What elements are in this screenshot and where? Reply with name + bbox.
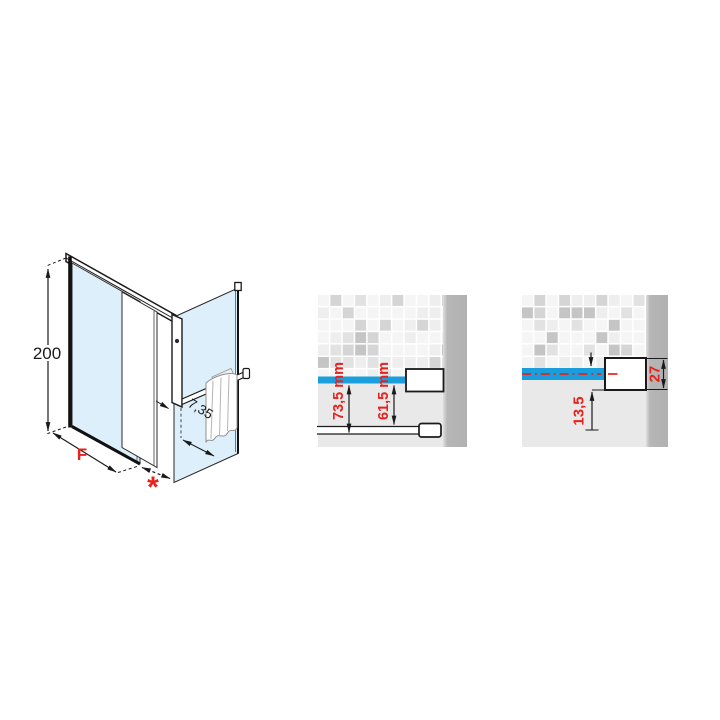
- outer-dim-label: 73,5 mm: [331, 362, 347, 420]
- mosaic-tile: [621, 345, 632, 356]
- mosaic-tile: [380, 320, 391, 331]
- mosaic-tile: [330, 332, 341, 343]
- mosaic-tile: [584, 320, 595, 331]
- mosaic-tile: [596, 307, 607, 318]
- mosaic-tile: [368, 307, 379, 318]
- mosaic-tile: [355, 320, 366, 331]
- mosaic-tile: [330, 307, 341, 318]
- mosaic-tile: [405, 320, 416, 331]
- mosaic-tile: [609, 345, 620, 356]
- profile-dim-label: 27: [647, 366, 664, 383]
- mosaic-tile: [609, 320, 620, 331]
- mosaic-tile: [559, 332, 570, 343]
- mosaic-tile: [534, 357, 545, 368]
- mosaic-tile: [430, 357, 441, 368]
- mosaic-tile: [318, 369, 329, 377]
- mosaic-tile: [596, 345, 607, 356]
- mosaic-tile: [584, 332, 595, 343]
- mosaic-tile: [380, 332, 391, 343]
- mosaic-tile: [318, 357, 329, 368]
- mosaic-tile: [405, 357, 416, 368]
- mosaic-tile: [355, 295, 366, 306]
- technical-drawing: 200: [0, 0, 720, 720]
- mosaic-tile: [442, 295, 443, 306]
- mosaic-tile: [343, 332, 354, 343]
- mosaic-tile: [559, 307, 570, 318]
- mosaic-tile: [596, 332, 607, 343]
- mosaic-tile: [559, 345, 570, 356]
- mosaic-tile: [621, 320, 632, 331]
- mosaic-tile: [368, 332, 379, 343]
- wall-edge-band: [443, 295, 467, 447]
- offset-pointer-arrow: [156, 401, 169, 409]
- mosaic-tile: [368, 295, 379, 306]
- mosaic-tile: [343, 320, 354, 331]
- mosaic-tile: [405, 295, 416, 306]
- mosaic-tile: [430, 320, 441, 331]
- mosaic-tile: [534, 307, 545, 318]
- height-dimension: 200: [31, 258, 66, 435]
- mosaic-tile: [547, 320, 558, 331]
- wall-detail-right: 27 13,5: [522, 295, 668, 447]
- mosaic-tile: [343, 295, 354, 306]
- mosaic-tile: [547, 345, 558, 356]
- mosaic-tile: [572, 320, 583, 331]
- height-label: 200: [33, 344, 61, 363]
- mosaic-tile: [634, 345, 645, 356]
- floor-bar-end-cap: [419, 424, 441, 438]
- mosaic-tile: [318, 320, 329, 331]
- door-glass: [122, 292, 157, 468]
- mosaic-tile: [330, 345, 341, 356]
- mosaic-tile: [442, 307, 443, 318]
- mosaic-tile: [343, 345, 354, 356]
- width-extension-dash: [118, 467, 137, 473]
- mosaic-tile: [572, 307, 583, 318]
- profile-section: [406, 369, 444, 392]
- mosaic-tile: [318, 295, 329, 306]
- gap-label: *: [147, 471, 159, 504]
- mosaic-tile: [634, 295, 645, 306]
- mosaic-tile: [355, 369, 366, 377]
- mosaic-tile: [442, 320, 443, 331]
- mosaic-tile: [392, 369, 403, 377]
- mosaic-tile: [318, 307, 329, 318]
- mosaic-tile: [392, 320, 403, 331]
- mosaic-tile: [417, 345, 428, 356]
- mosaic-tile: [380, 345, 391, 356]
- mosaic-tile: [380, 295, 391, 306]
- mosaic-tile: [584, 345, 595, 356]
- tile-mosaic: [522, 295, 645, 368]
- mosaic-tile: [572, 295, 583, 306]
- mosaic-tile: [392, 295, 403, 306]
- mosaic-tile: [559, 320, 570, 331]
- diagram-canvas: 200: [0, 0, 720, 720]
- mosaic-tile: [318, 345, 329, 356]
- mosaic-tile: [330, 295, 341, 306]
- mosaic-tile: [522, 345, 533, 356]
- mosaic-tile: [430, 345, 441, 356]
- mosaic-tile: [442, 345, 443, 356]
- mosaic-tile: [522, 307, 533, 318]
- mosaic-tile: [405, 332, 416, 343]
- mosaic-tile: [442, 332, 443, 343]
- mosaic-tile: [522, 295, 533, 306]
- bottom-dim-label: 13,5: [571, 396, 588, 425]
- mosaic-tile: [355, 332, 366, 343]
- mosaic-tile: [584, 357, 595, 368]
- mosaic-tile: [547, 357, 558, 368]
- mosaic-tile: [392, 345, 403, 356]
- mosaic-tile: [430, 307, 441, 318]
- mosaic-tile: [417, 320, 428, 331]
- mosaic-tile: [534, 320, 545, 331]
- side-panel-top-cap: [235, 283, 241, 291]
- mosaic-tile: [609, 295, 620, 306]
- gap-dimension: *: [142, 468, 170, 505]
- mosaic-tile: [534, 345, 545, 356]
- mosaic-tile: [417, 307, 428, 318]
- mosaic-tile: [609, 332, 620, 343]
- mosaic-tile: [355, 357, 366, 368]
- side-panel-profile: [172, 315, 182, 408]
- mosaic-tile: [392, 307, 403, 318]
- mosaic-tile: [534, 332, 545, 343]
- towel-bar-cap: [243, 369, 250, 379]
- mosaic-tile: [572, 357, 583, 368]
- wall-detail-left: 73,5 mm 61,5 mm: [317, 295, 467, 447]
- mosaic-tile: [355, 307, 366, 318]
- mosaic-tile: [596, 295, 607, 306]
- mosaic-tile: [621, 332, 632, 343]
- mosaic-tile: [522, 332, 533, 343]
- mosaic-tile: [621, 307, 632, 318]
- mosaic-tile: [392, 332, 403, 343]
- mosaic-tile: [547, 332, 558, 343]
- mosaic-tile: [318, 332, 329, 343]
- mosaic-tile: [442, 357, 443, 368]
- mosaic-tile: [417, 295, 428, 306]
- mosaic-tile: [572, 332, 583, 343]
- mosaic-tile: [405, 345, 416, 356]
- mosaic-tile: [634, 320, 645, 331]
- mosaic-tile: [621, 295, 632, 306]
- mosaic-tile: [417, 332, 428, 343]
- mosaic-tile: [522, 320, 533, 331]
- mosaic-tile: [430, 332, 441, 343]
- sliding-door-panel: [122, 292, 157, 468]
- mosaic-tile: [330, 320, 341, 331]
- mosaic-tile: [430, 295, 441, 306]
- mosaic-tile: [547, 295, 558, 306]
- mosaic-tile: [559, 357, 570, 368]
- mosaic-tile: [380, 307, 391, 318]
- mosaic-tile: [584, 307, 595, 318]
- mosaic-tile: [392, 357, 403, 368]
- inner-dim-label: 61,5 mm: [376, 362, 392, 420]
- mosaic-tile: [559, 295, 570, 306]
- mosaic-tile: [343, 307, 354, 318]
- mosaic-tile: [368, 320, 379, 331]
- mosaic-tile: [355, 345, 366, 356]
- mosaic-tile: [522, 357, 533, 368]
- mosaic-tile: [405, 307, 416, 318]
- mosaic-tile: [572, 345, 583, 356]
- mosaic-tile: [417, 357, 428, 368]
- mosaic-tile: [547, 307, 558, 318]
- mosaic-tile: [534, 295, 545, 306]
- mosaic-tile: [634, 332, 645, 343]
- mosaic-tile: [609, 307, 620, 318]
- width-label: F: [77, 445, 87, 464]
- mosaic-tile: [596, 320, 607, 331]
- screw-dot: [175, 339, 179, 343]
- mosaic-tile: [368, 345, 379, 356]
- mosaic-tile: [584, 295, 595, 306]
- mosaic-tile: [634, 307, 645, 318]
- floor-bar-body: [317, 427, 419, 435]
- isometric-shower-diagram: 200: [31, 254, 250, 505]
